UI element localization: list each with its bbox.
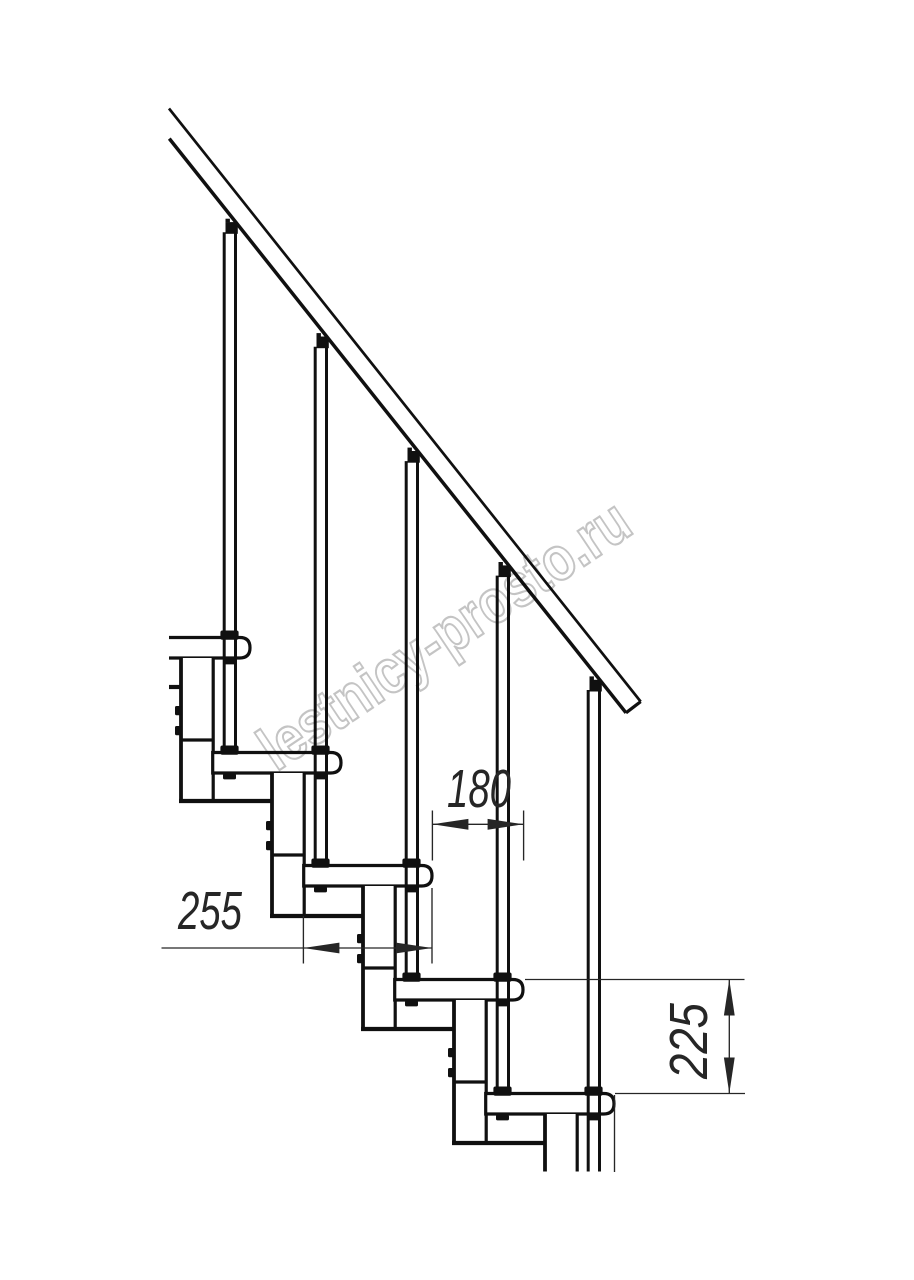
svg-text:255: 255 <box>177 881 242 941</box>
svg-text:180: 180 <box>447 759 511 819</box>
svg-text:225: 225 <box>659 1002 719 1080</box>
